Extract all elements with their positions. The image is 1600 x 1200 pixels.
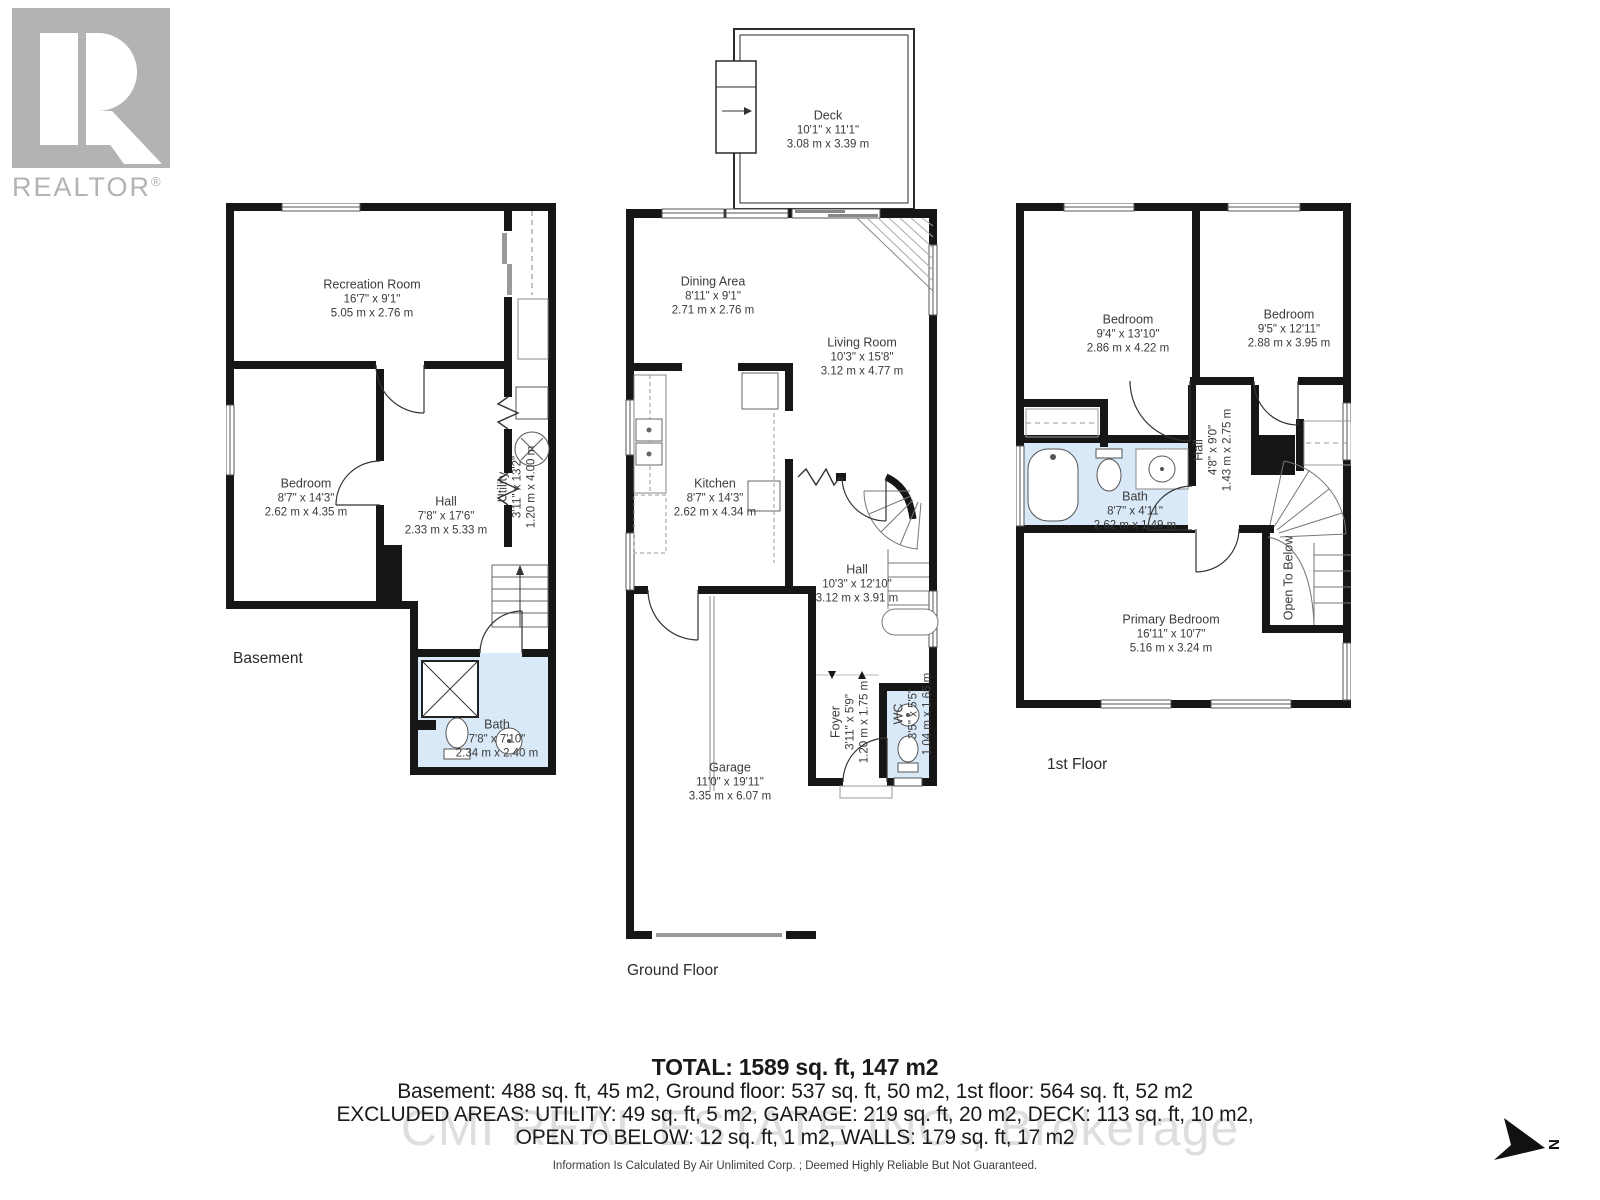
basement-closet [518, 211, 548, 359]
room-label-bedroom-right: Bedroom 9'5" x 12'11" 2.88 m x 3.95 m [1248, 307, 1330, 350]
room-label-basement-hall: Hall 7'8" x 17'6" 2.33 m x 5.33 m [405, 494, 487, 537]
north-label: N [1545, 1139, 1562, 1150]
floor-label-basement: Basement [233, 650, 303, 668]
room-label-living: Living Room 10'3" x 15'8" 3.12 m x 4.77 … [821, 335, 903, 378]
room-label-primary-bedroom: Primary Bedroom 16'11" x 10'7" 5.16 m x … [1122, 612, 1219, 655]
room-label-first-hall: Hall 4'8" x 9'0" 1.43 m x 2.75 m [1191, 409, 1234, 491]
summary-excluded-2: OPEN TO BELOW: 12 sq. ft, 1 m2, WALLS: 1… [516, 1126, 1075, 1150]
room-label-dining: Dining Area 8'11" x 9'1" 2.71 m x 2.76 m [672, 274, 754, 317]
foyer-opening [816, 671, 879, 679]
room-label-wc: WC 3'5" x 5'5" 1.04 m x 1.65 m [891, 673, 934, 755]
room-label-recreation: Recreation Room 16'7" x 9'1" 5.05 m x 2.… [323, 277, 420, 320]
north-arrow-icon [1470, 1095, 1560, 1170]
room-label-bedroom-left: Bedroom 9'4" x 13'10" 2.86 m x 4.22 m [1087, 312, 1169, 355]
summary-excluded-1: EXCLUDED AREAS: UTILITY: 49 sq. ft, 5 m2… [336, 1103, 1253, 1127]
room-label-basement-bedroom: Bedroom 8'7" x 14'3" 2.62 m x 4.35 m [265, 476, 347, 519]
ground-floorplan [622, 23, 942, 953]
room-label-utility: Utility 3'11" x 13'2" 1.20 m x 4.00 m [495, 446, 538, 528]
room-label-ground-hall: Hall 10'3" x 12'10" 3.12 m x 3.91 m [816, 562, 898, 605]
realtor-logo-wordmark: REALTOR® [12, 172, 163, 203]
floor-label-ground: Ground Floor [627, 962, 718, 980]
summary-disclaimer: Information Is Calculated By Air Unlimit… [553, 1160, 1038, 1172]
basement-windows [226, 203, 512, 475]
room-label-basement-bath: Bath 7'8" x 7'10" 2.34 m x 2.40 m [456, 717, 538, 760]
floorplan-page: REALTOR® [0, 0, 1600, 1200]
basement-shower [422, 661, 478, 717]
room-label-deck: Deck 10'1" x 11'1" 3.08 m x 3.39 m [787, 108, 869, 151]
room-label-kitchen: Kitchen 8'7" x 14'3" 2.62 m x 4.34 m [674, 476, 756, 519]
ground-zigzag [798, 469, 840, 485]
kitchen-fixtures [634, 373, 780, 563]
realtor-logo-icon [12, 8, 170, 170]
basement-stairs [492, 565, 548, 627]
upper-stair-hatch [857, 218, 933, 291]
summary-total: TOTAL: 1589 sq. ft, 147 m2 [652, 1054, 939, 1081]
curved-stair-wall [886, 477, 913, 519]
room-label-first-bath: Bath 8'7" x 4'11" 2.62 m x 1.49 m [1094, 489, 1176, 532]
room-label-foyer: Foyer 3'11" x 5'9" 1.20 m x 1.75 m [828, 681, 871, 763]
room-label-garage: Garage 11'0" x 19'11" 3.35 m x 6.07 m [689, 760, 771, 803]
room-label-open-to-below: Open To Below [1281, 536, 1296, 621]
floor-label-first: 1st Floor [1047, 756, 1107, 774]
summary-floors: Basement: 488 sq. ft, 45 m2, Ground floo… [397, 1080, 1193, 1104]
